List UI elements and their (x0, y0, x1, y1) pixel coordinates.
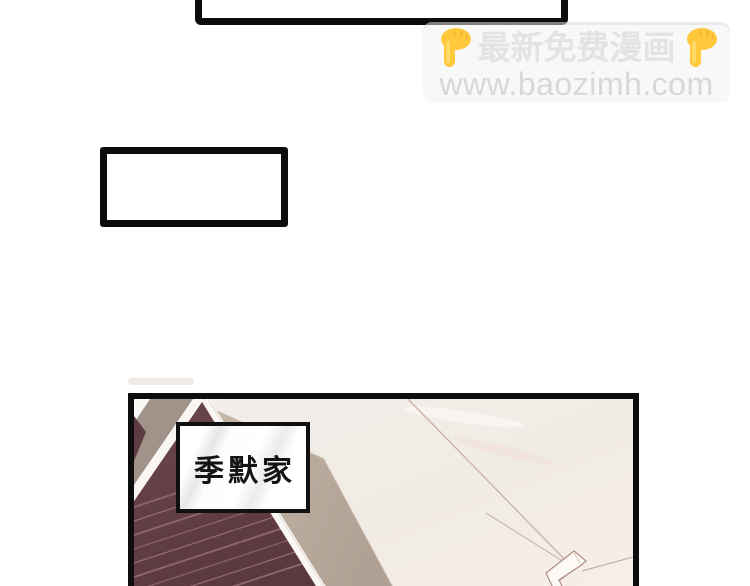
watermark-row1: 最新免费漫画 (435, 25, 719, 71)
pointing-down-hand-icon-left (435, 27, 473, 69)
watermark-title: 最新免费漫画 (478, 25, 676, 71)
pointing-down-hand-icon-right (681, 27, 719, 69)
speech-bubble-middle (100, 147, 288, 227)
location-label: 季默家 (190, 446, 296, 490)
ink-smudge (128, 378, 194, 385)
watermark-url: www.baozimh.com (439, 69, 713, 99)
location-label-box: 季默家 (176, 422, 310, 513)
watermark: 最新免费漫画 www.baozimh.com (423, 22, 730, 103)
comic-page: 最新免费漫画 www.baozimh.com (0, 0, 750, 586)
comic-panel: 季默家 (128, 393, 639, 586)
